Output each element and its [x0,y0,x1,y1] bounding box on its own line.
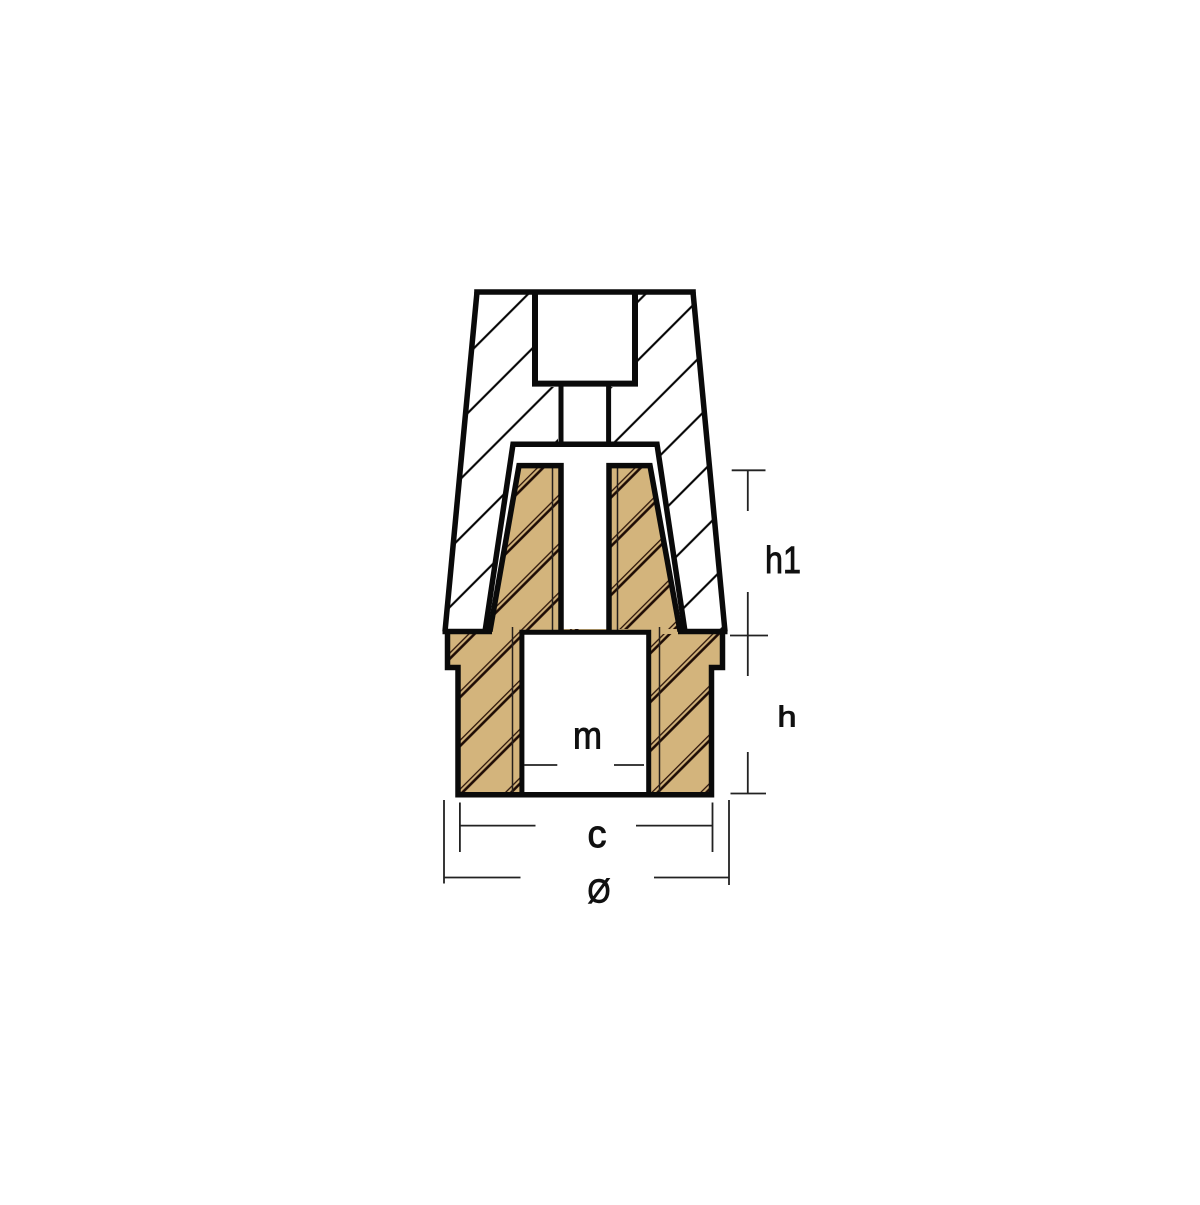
svg-text:h1: h1 [765,540,801,582]
svg-text:h: h [778,702,797,734]
svg-text:c: c [588,814,607,856]
svg-text:Ø: Ø [588,873,611,910]
svg-text:m: m [573,716,602,758]
